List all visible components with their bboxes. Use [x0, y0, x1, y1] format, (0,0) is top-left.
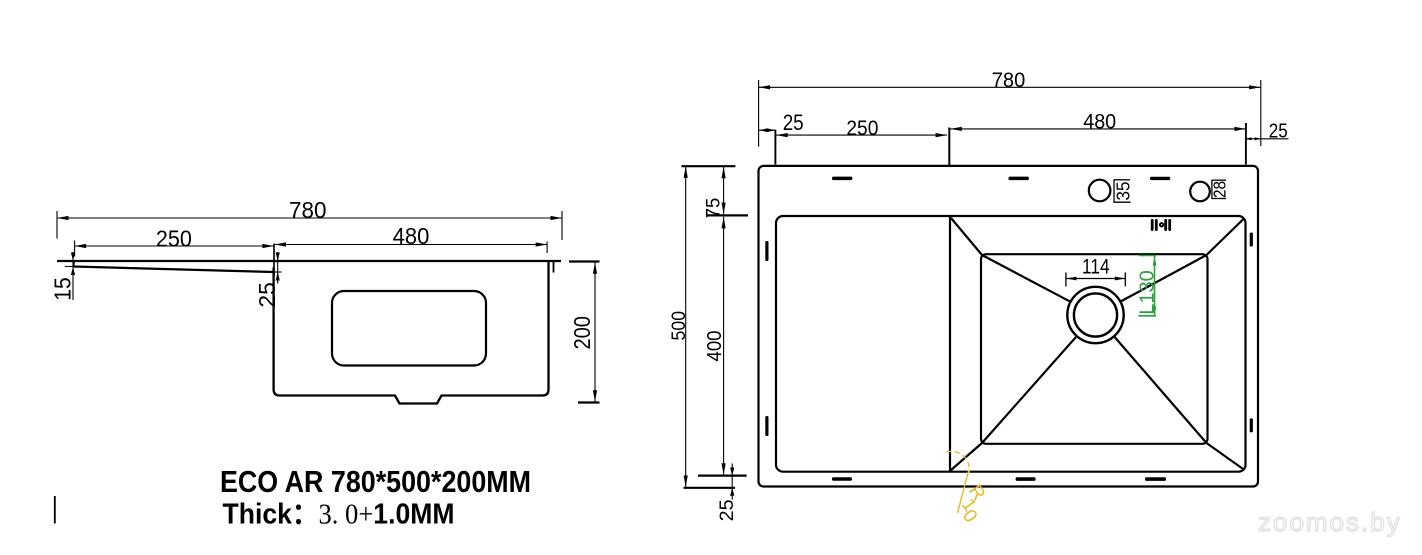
svg-text:480: 480 [1083, 110, 1116, 134]
svg-text:28: 28 [1210, 181, 1230, 198]
svg-text:480: 480 [393, 223, 430, 249]
svg-text:250: 250 [846, 116, 878, 140]
svg-text:ECO AR 780*500*200MM: ECO AR 780*500*200MM [220, 464, 531, 499]
svg-text:Thick：3. 0+1.0MM: Thick：3. 0+1.0MM [223, 499, 455, 531]
svg-text:500: 500 [668, 311, 690, 341]
svg-text:15: 15 [50, 277, 76, 301]
svg-text:250: 250 [156, 225, 192, 251]
svg-text:25: 25 [716, 499, 738, 521]
svg-text:400: 400 [703, 331, 726, 362]
svg-text:35: 35 [1114, 182, 1134, 201]
svg-text:25: 25 [254, 282, 280, 308]
svg-text:200: 200 [569, 316, 595, 350]
svg-text:25: 25 [783, 110, 804, 135]
svg-text:114: 114 [1082, 256, 1110, 279]
svg-text:780: 780 [289, 197, 327, 223]
svg-text:L130: L130 [1136, 270, 1158, 315]
svg-text:zoomos.by: zoomos.by [1258, 507, 1402, 537]
svg-text:780: 780 [992, 68, 1026, 92]
